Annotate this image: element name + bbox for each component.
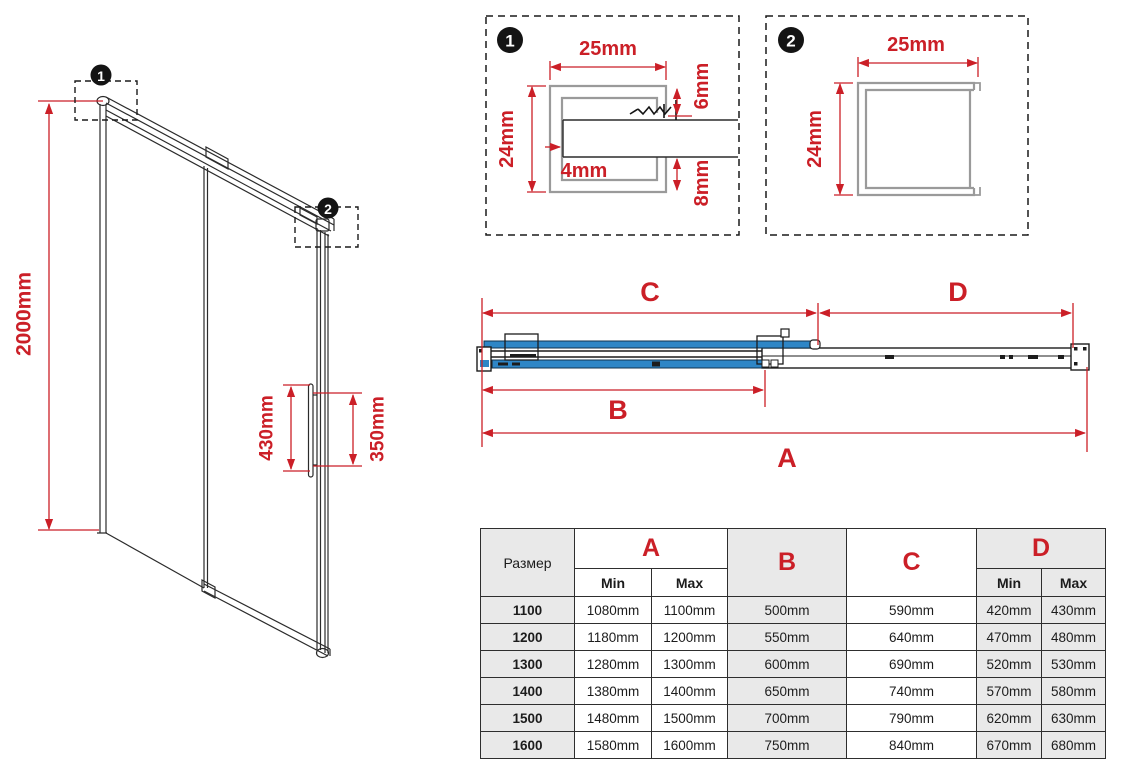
- a-max-header: Max: [652, 569, 728, 597]
- cell-d-min: 570mm: [977, 678, 1042, 705]
- cell-a-min: 1280mm: [575, 651, 652, 678]
- table-row: 12001180mm1200mm550mm640mm470mm480mm: [481, 624, 1106, 651]
- cell-size: 1400: [481, 678, 575, 705]
- detail-1-bottom-gap-label: 8mm: [691, 160, 713, 207]
- detail-2-width-label: 25mm: [887, 34, 945, 56]
- cell-b: 600mm: [728, 651, 847, 678]
- detail-2-number: 2: [786, 32, 795, 51]
- bracket-screw-2: [771, 360, 778, 367]
- handle-length-extensions: [283, 385, 310, 471]
- cell-a-max: 1600mm: [652, 732, 728, 759]
- detail-2-square-profile: [858, 83, 980, 195]
- plan-dim-c-label: C: [640, 277, 660, 307]
- cell-c: 590mm: [847, 597, 977, 624]
- detail-2-dims: [834, 57, 978, 195]
- cell-a-min: 1380mm: [575, 678, 652, 705]
- column-a-header: A: [575, 529, 728, 569]
- cell-a-min: 1180mm: [575, 624, 652, 651]
- cell-d-min: 670mm: [977, 732, 1042, 759]
- callout-2-number: 2: [324, 201, 332, 217]
- anti-jump-block: [781, 329, 789, 337]
- table-row: 11001080mm1100mm500mm590mm420mm430mm: [481, 597, 1106, 624]
- handle-length-label: 430mm: [257, 395, 278, 461]
- cell-d-max: 530mm: [1042, 651, 1106, 678]
- cell-a-max: 1100mm: [652, 597, 728, 624]
- table-row: 16001580mm1600mm750mm840mm670mm680mm: [481, 732, 1106, 759]
- detail-1-number: 1: [505, 32, 514, 51]
- column-d-header: D: [977, 529, 1106, 569]
- cell-b: 700mm: [728, 705, 847, 732]
- iso-door-drawing: [97, 97, 334, 658]
- table-row: 15001480mm1500mm700mm790mm620mm630mm: [481, 705, 1106, 732]
- fixed-panel-glass: [484, 341, 818, 348]
- cell-c: 740mm: [847, 678, 977, 705]
- table-row: 14001380mm1400mm650mm740mm570mm580mm: [481, 678, 1106, 705]
- plan-dim-b-label: B: [608, 395, 628, 425]
- detail-1-glass-panel: [563, 120, 738, 157]
- cell-c: 640mm: [847, 624, 977, 651]
- cell-b: 500mm: [728, 597, 847, 624]
- cell-b: 550mm: [728, 624, 847, 651]
- detail-1-view: 1 25mm 24mm 6mm 4mm 8mm: [486, 16, 739, 235]
- detail-1-wall-label: 4mm: [561, 160, 608, 182]
- door-left-edge: [204, 166, 208, 588]
- cell-d-max: 480mm: [1042, 624, 1106, 651]
- bottom-rail: [204, 584, 330, 656]
- cell-d-max: 630mm: [1042, 705, 1106, 732]
- height-extension-lines: [38, 101, 103, 530]
- cell-a-min: 1080mm: [575, 597, 652, 624]
- door-right-stile: [317, 228, 328, 653]
- bracket-screw-1: [762, 360, 769, 367]
- cell-size: 1100: [481, 597, 575, 624]
- cell-size: 1300: [481, 651, 575, 678]
- detail-1-dims: [527, 61, 692, 192]
- callout-1-number: 1: [97, 68, 105, 84]
- cell-a-max: 1200mm: [652, 624, 728, 651]
- plan-dims: [482, 298, 1087, 452]
- cell-d-min: 620mm: [977, 705, 1042, 732]
- table-row: 13001280mm1300mm600mm690mm520mm530mm: [481, 651, 1106, 678]
- detail-1-top-gap-label: 6mm: [691, 63, 713, 110]
- detail-2-height-label: 24mm: [804, 110, 826, 168]
- detail-1-screw-icon: [630, 100, 676, 120]
- cell-a-max: 1300mm: [652, 651, 728, 678]
- cell-d-max: 680mm: [1042, 732, 1106, 759]
- detail-2-view: 2 25mm 24mm: [766, 16, 1028, 235]
- fixed-panel-left-edge: [97, 104, 107, 533]
- technical-drawing-page: 2000mm 430mm 350mm 1 2 1: [0, 0, 1125, 776]
- detail-1-height-label: 24mm: [496, 110, 518, 168]
- cell-d-max: 580mm: [1042, 678, 1106, 705]
- cell-size: 1200: [481, 624, 575, 651]
- cell-size: 1600: [481, 732, 575, 759]
- column-c-header: C: [847, 529, 977, 597]
- d-max-header: Max: [1042, 569, 1106, 597]
- a-min-header: Min: [575, 569, 652, 597]
- cell-d-min: 520mm: [977, 651, 1042, 678]
- cell-c: 840mm: [847, 732, 977, 759]
- cell-a-min: 1580mm: [575, 732, 652, 759]
- handle-holes-label: 350mm: [368, 396, 389, 462]
- size-table-body: 11001080mm1100mm500mm590mm420mm430mm1200…: [481, 597, 1106, 759]
- d-min-header: Min: [977, 569, 1042, 597]
- cell-a-max: 1400mm: [652, 678, 728, 705]
- cell-c: 790mm: [847, 705, 977, 732]
- cell-b: 750mm: [728, 732, 847, 759]
- cell-b: 650mm: [728, 678, 847, 705]
- fixed-panel-bottom-edge: [106, 533, 204, 588]
- door-handle[interactable]: [309, 384, 314, 477]
- plan-dim-a-label: A: [777, 443, 797, 473]
- plan-dim-d-label: D: [948, 277, 968, 307]
- cell-a-max: 1500mm: [652, 705, 728, 732]
- height-dim-label: 2000mm: [13, 272, 36, 356]
- cell-c: 690mm: [847, 651, 977, 678]
- rail-right-section: [762, 348, 1072, 368]
- cell-size: 1500: [481, 705, 575, 732]
- cell-d-min: 470mm: [977, 624, 1042, 651]
- column-b-header: B: [728, 529, 847, 597]
- plan-track-view: C D B A: [477, 277, 1089, 473]
- detail-1-width-label: 25mm: [579, 38, 637, 60]
- sliding-door-glass[interactable]: [484, 360, 762, 368]
- cell-d-min: 420mm: [977, 597, 1042, 624]
- cell-d-max: 430mm: [1042, 597, 1106, 624]
- size-column-header: Размер: [481, 529, 575, 597]
- table-header-row-1: Размер A B C D: [481, 529, 1106, 569]
- size-table: Размер A B C D Min Max Min Max 11001080m…: [480, 528, 1106, 759]
- iso-dimensions: [38, 101, 362, 530]
- cell-a-min: 1480mm: [575, 705, 652, 732]
